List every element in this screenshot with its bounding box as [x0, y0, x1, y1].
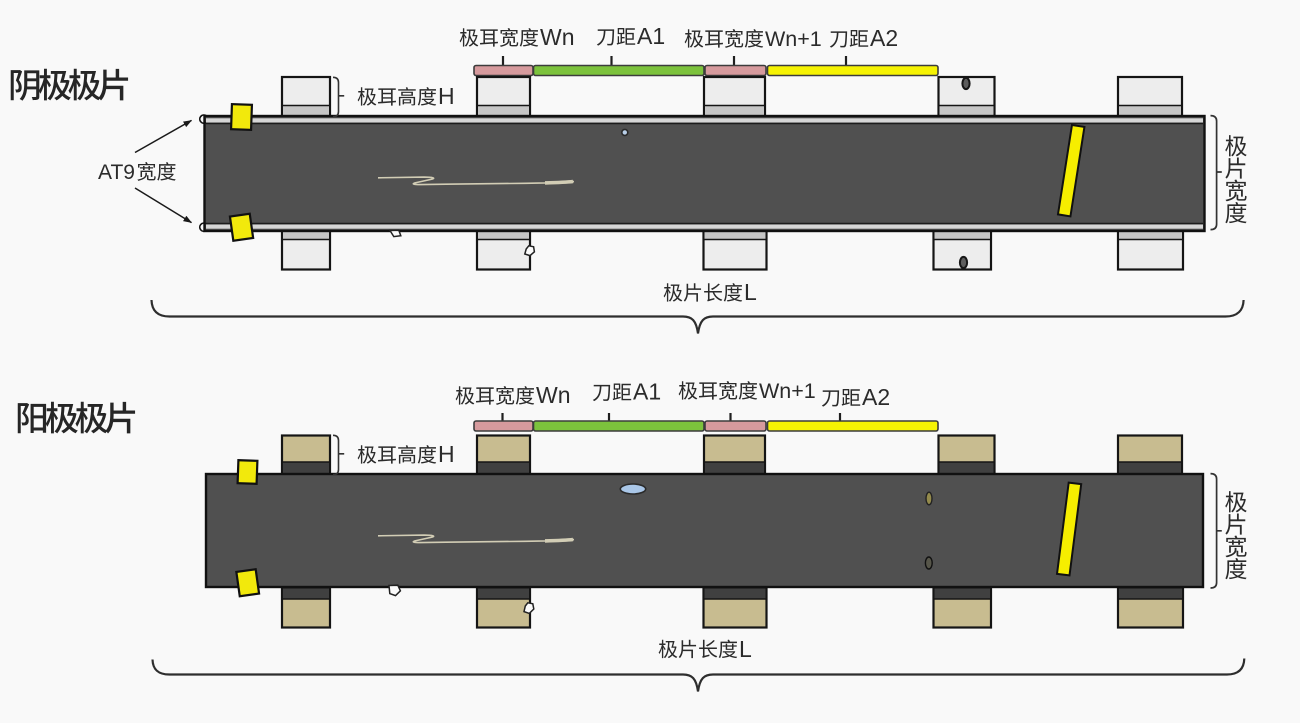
- svg-text:A1: A1: [633, 379, 661, 405]
- svg-text:Wn: Wn: [536, 382, 571, 408]
- svg-text:AT9: AT9: [98, 161, 135, 184]
- svg-text:L: L: [739, 636, 752, 662]
- svg-text:Wn+1: Wn+1: [759, 379, 816, 403]
- svg-text:L: L: [744, 279, 757, 305]
- svg-text:Wn+1: Wn+1: [765, 27, 822, 51]
- svg-text:A2: A2: [870, 25, 898, 51]
- svg-text:Wn: Wn: [540, 24, 575, 50]
- svg-text:A1: A1: [637, 23, 665, 49]
- svg-text:H: H: [438, 83, 455, 109]
- svg-text:H: H: [438, 441, 455, 467]
- svg-text:A2: A2: [862, 384, 890, 410]
